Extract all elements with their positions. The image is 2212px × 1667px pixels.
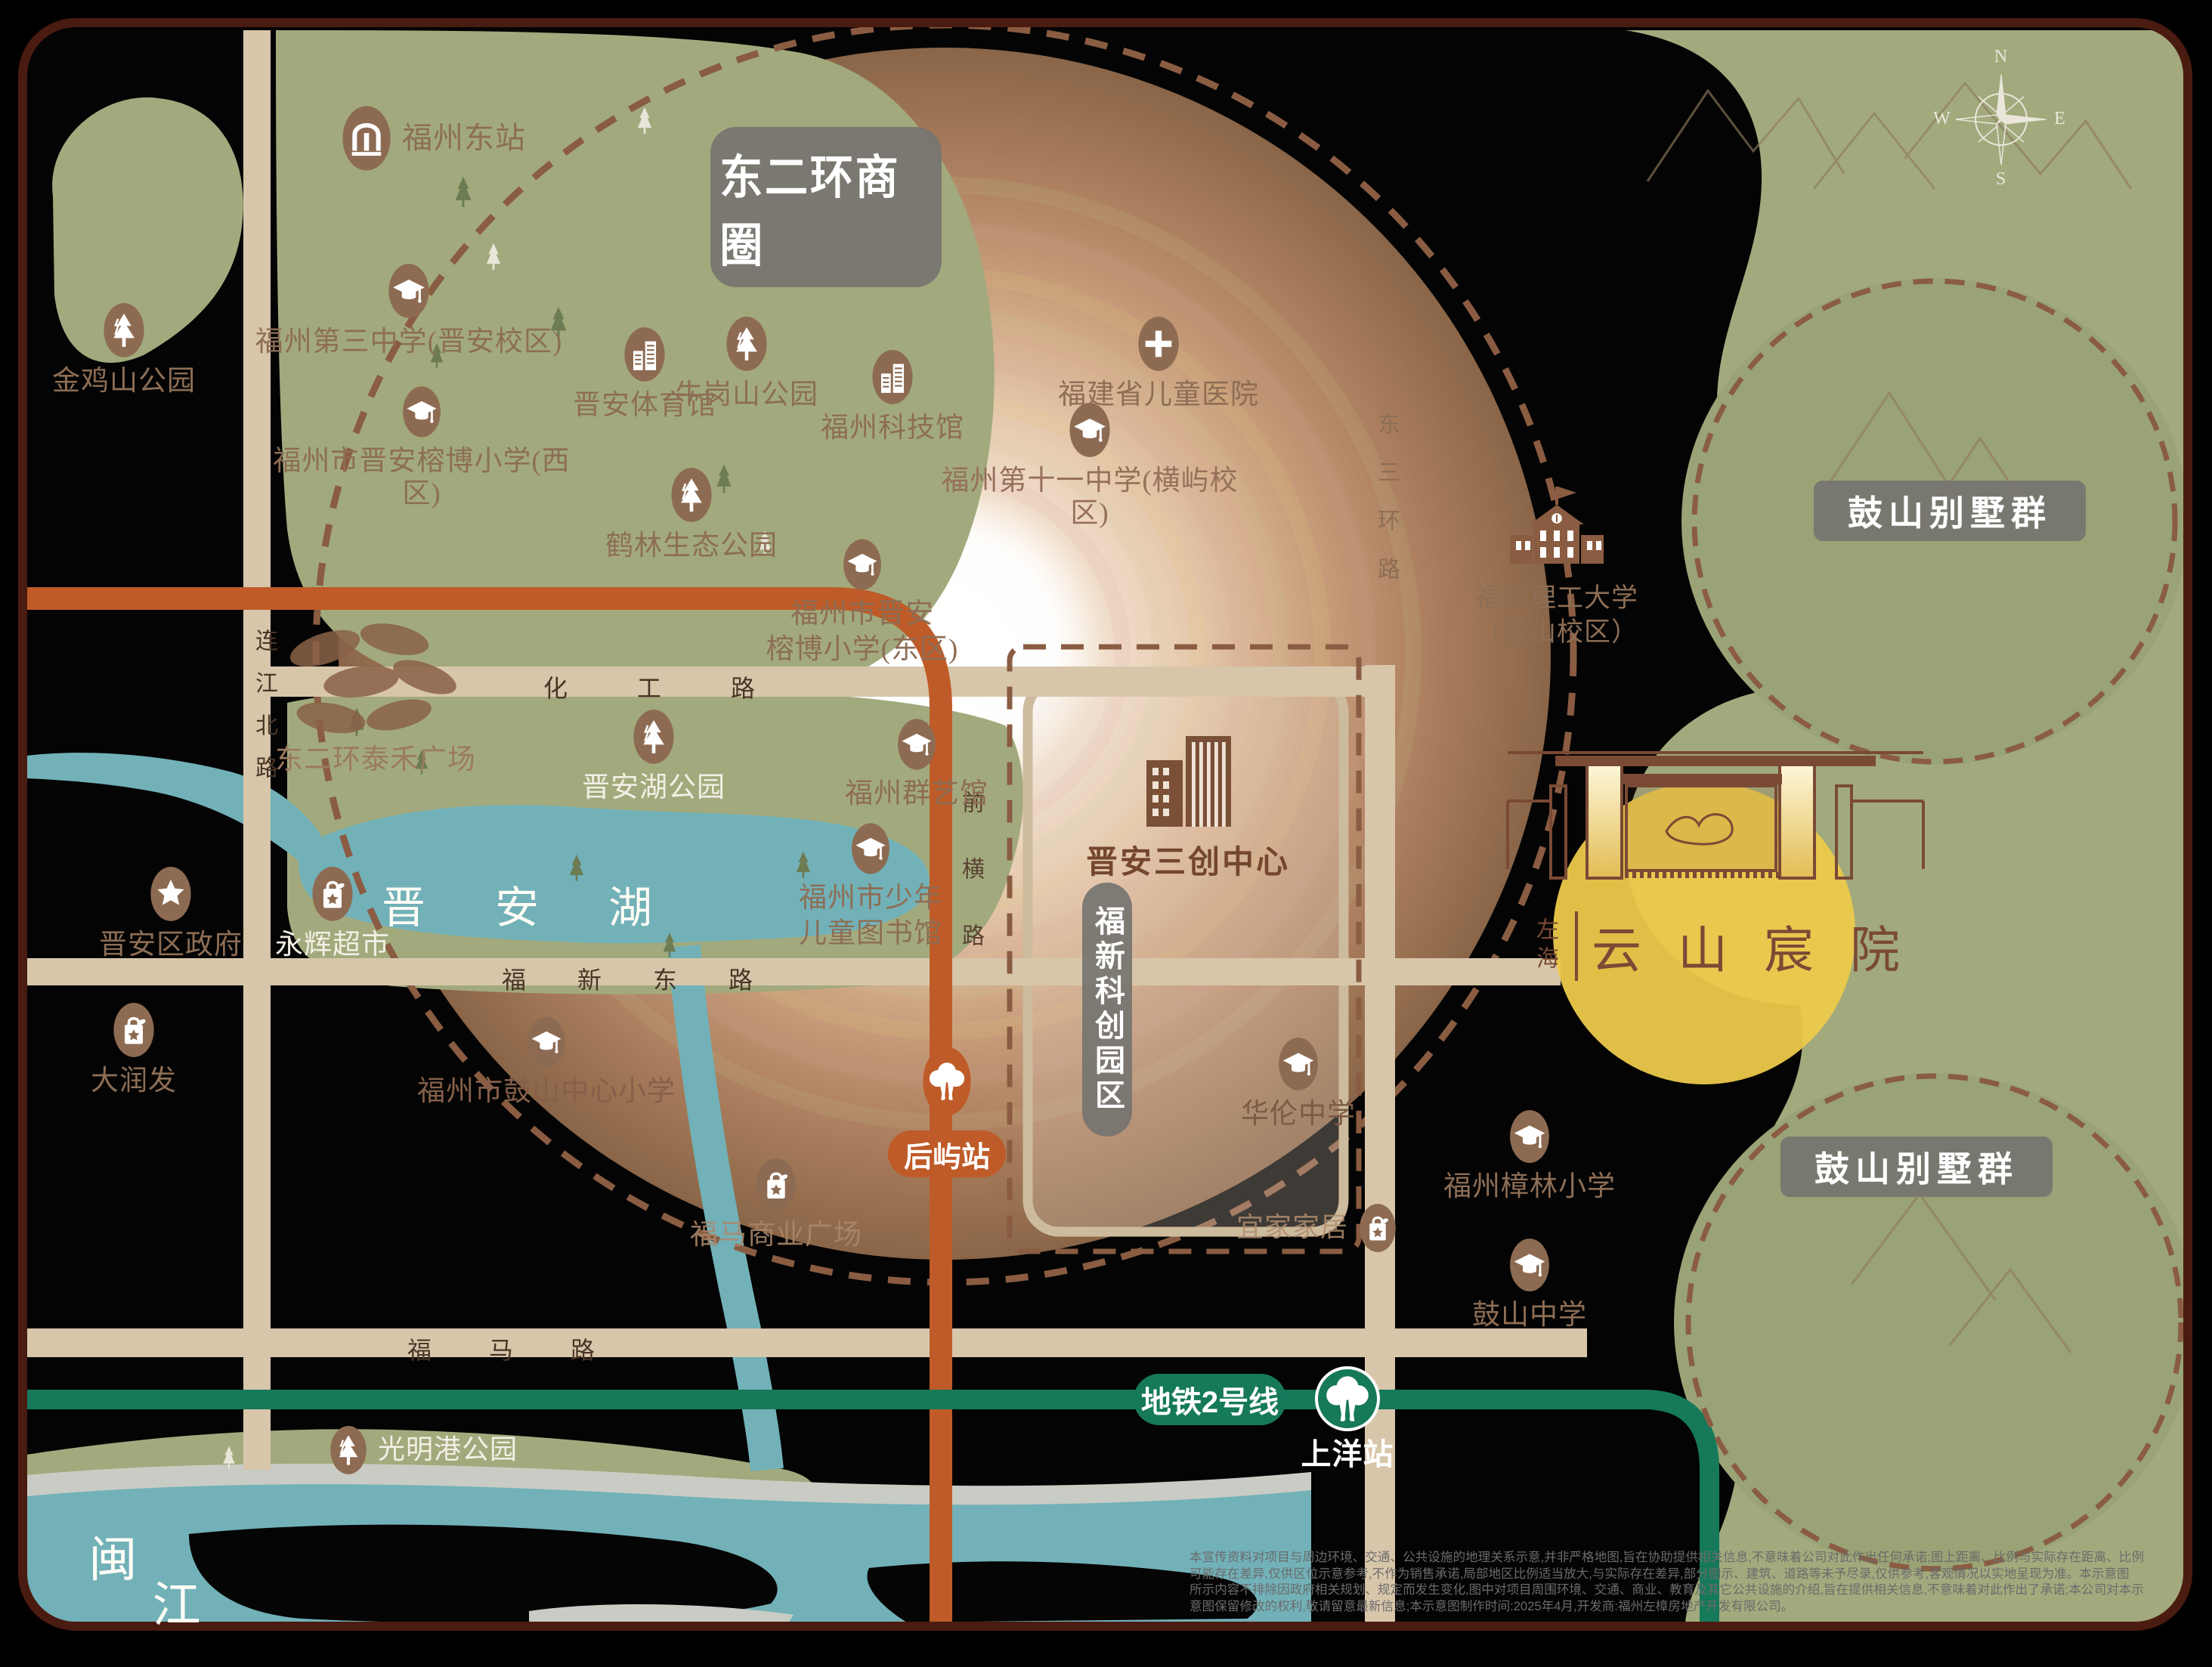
metro-icon (922, 1046, 972, 1117)
metro-icon (1315, 1366, 1380, 1431)
villas-top-label: 鼓山别墅群 (1848, 486, 2052, 536)
houyu-station-marker (922, 1046, 972, 1121)
disclaimer-line: 可能存在差异,仅供区位示意参考,不作为销售承诺,局部地区比例适当放大,与实际存在… (1190, 1566, 2144, 1582)
park-tree-icon (329, 1425, 367, 1475)
poi-guangminggang-park: 光明港公园 (329, 1425, 518, 1475)
science-park-pill: 福新科创园区 (1082, 883, 1132, 1137)
river-label-char1: 闽 (89, 1532, 138, 1588)
road-label-qianheng: 前横路 (954, 790, 987, 990)
disclaimer-line: 本宣传资料对项目与周边环境、交通、公共设施的地理关系示意,并非严格地图,旨在协助… (1190, 1549, 2144, 1566)
logo-divider (1575, 911, 1578, 981)
poi-taihe-plaza-label: 东二环泰禾广场 (275, 744, 476, 777)
science-park-label: 福新科创园区 (1085, 905, 1129, 1114)
business-circle-badge: 东二环商圈 (710, 127, 942, 287)
compass-e: E (2054, 109, 2066, 130)
train-station-icon (342, 104, 391, 172)
disclaimer: 本宣传资料对项目与周边环境、交通、公共设施的地理关系示意,并非严格地图,旨在协助… (1190, 1549, 2144, 1614)
poi-fuzhou-east-station: 福州东站 (342, 104, 526, 172)
office-towers-icon (1137, 727, 1239, 833)
project-name: 云山宸院 (1592, 910, 1936, 982)
business-circle-label: 东二环商圈 (719, 139, 933, 275)
road-label-east-third-ring: 东三环路 (1369, 412, 1403, 605)
villas-top-badge: 鼓山别墅群 (1814, 481, 2086, 541)
sanchuang-center-label: 晋安三创中心 (1086, 845, 1290, 882)
shopping-bag-icon (1359, 1203, 1397, 1253)
shangyang-station-label: 上洋站 (1301, 1437, 1394, 1472)
compass-n: N (1994, 47, 2008, 68)
road-label-huagong: 化 工 路 (543, 670, 787, 704)
metro-line-badge: 地铁2号线 (1134, 1374, 1286, 1425)
location-map: 东二环商圈 鼓山别墅群 鼓山别墅群 福新科创园区 地铁2号线 后屿站 上洋站 连… (0, 0, 2212, 1667)
project-brand: 左海 (1528, 917, 1561, 975)
poi-ikea: 宜家家居 (1236, 1203, 1397, 1253)
poi-label: 光明港公园 (378, 1434, 518, 1466)
river-label-char2: 江 (153, 1578, 202, 1634)
villas-bottom-badge: 鼓山别墅群 (1780, 1137, 2053, 1197)
houyu-station-label: 后屿站 (904, 1133, 990, 1175)
poi-label: 宜家家居 (1236, 1212, 1348, 1244)
houyu-station-badge: 后屿站 (888, 1130, 1006, 1177)
compass-s: S (1996, 169, 2006, 190)
project-logo: 左海 云山宸院 (1528, 910, 1936, 982)
lake-label: 晋安湖 (382, 883, 722, 933)
poi-label: 福州东站 (402, 121, 526, 156)
poi-sanchuang-center (1137, 727, 1239, 837)
road-label-fuma: 福 马 路 (407, 1331, 620, 1366)
metro-line-label: 地铁2号线 (1141, 1378, 1279, 1421)
villas-bottom-label: 鼓山别墅群 (1814, 1142, 2019, 1192)
shangyang-station-marker (1315, 1366, 1380, 1435)
road-label-fuxin-east: 福 新 东 路 (502, 961, 775, 996)
disclaimer-line: 意图保留修改的权利,敬请留意最新信息;本示意图制作时间:2025年4月,开发商:… (1190, 1598, 2144, 1615)
disclaimer-line: 所示内容不排除因政府相关规划、规定而发生变化,图中对项目周围环境、交通、商业、教… (1190, 1582, 2144, 1598)
compass-w: W (1933, 109, 1951, 130)
map-artwork (0, 0, 2212, 1667)
